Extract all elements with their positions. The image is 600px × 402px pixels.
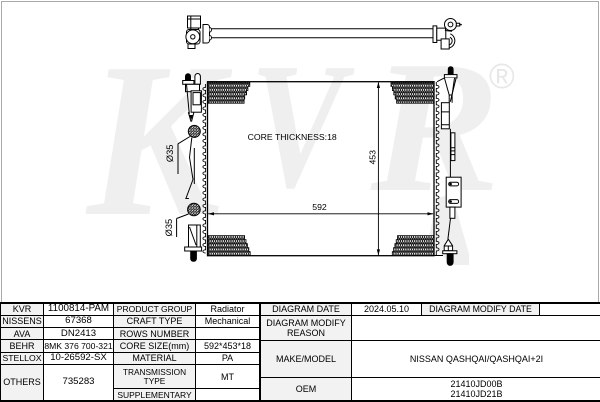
svg-text:453: 453 [368, 150, 378, 165]
svg-text:V: V [250, 26, 355, 226]
svg-text:Ø35: Ø35 [164, 219, 174, 237]
svg-text:Ø35: Ø35 [165, 145, 175, 163]
svg-text:592: 592 [312, 202, 327, 212]
svg-text:CORE THICKNESS:18: CORE THICKNESS:18 [248, 132, 337, 142]
svg-text:K: K [85, 17, 233, 262]
svg-text:®: ® [489, 57, 515, 96]
svg-text:R: R [370, 22, 500, 231]
